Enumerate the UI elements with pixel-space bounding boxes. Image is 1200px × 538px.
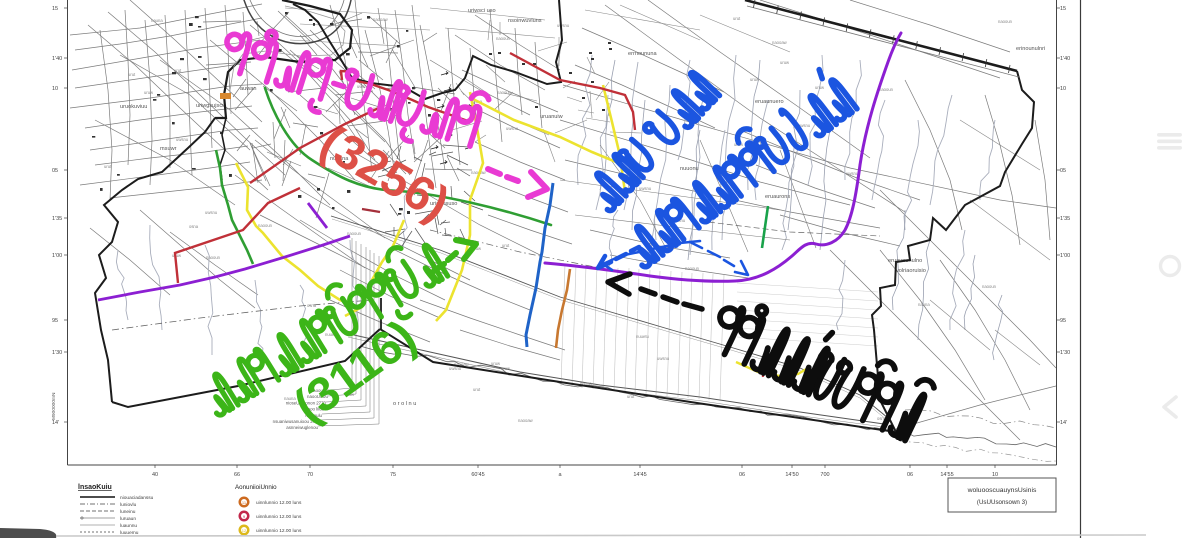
svg-text:1'35: 1'35 xyxy=(1060,216,1070,222)
svg-text:10: 10 xyxy=(1060,86,1066,92)
svg-text:uruw: uruw xyxy=(750,77,760,82)
svg-text:naooun: naooun xyxy=(258,223,273,228)
svg-text:uruw: uruw xyxy=(172,253,182,258)
svg-text:M900000mN: M900000mN xyxy=(51,392,57,420)
svg-text:uruw: uruw xyxy=(501,366,511,371)
svg-text:naooun: naooun xyxy=(685,266,700,271)
svg-text:05: 05 xyxy=(52,168,58,174)
svg-text:uwsnu: uwsnu xyxy=(176,137,189,142)
svg-text:naooun: naooun xyxy=(497,90,512,95)
svg-text:uinnlunnio 12.00 luns: uinnlunnio 12.00 luns xyxy=(256,528,302,534)
svg-text:1'00: 1'00 xyxy=(1060,253,1070,259)
svg-text:urut: urut xyxy=(502,243,510,248)
svg-text:naooun: naooun xyxy=(998,19,1013,24)
svg-text:15: 15 xyxy=(1060,6,1066,12)
svg-text:AonuniioiUnnio: AonuniioiUnnio xyxy=(235,484,277,491)
svg-text:05: 05 xyxy=(1060,168,1066,174)
svg-text:urut: urut xyxy=(128,72,136,77)
svg-text:erinounulnri: erinounulnri xyxy=(1016,46,1045,52)
svg-text:nauna: nauna xyxy=(151,18,163,23)
svg-text:(UsUUsonsown 3): (UsUUsonsown 3) xyxy=(977,499,1027,506)
svg-text:urut: urut xyxy=(627,394,635,399)
svg-text:woluooscuauynsUsinis: woluooscuauynsUsinis xyxy=(967,487,1037,494)
svg-text:uwsnu: uwsnu xyxy=(506,126,519,131)
svg-text:12: 12 xyxy=(242,528,247,533)
svg-text:1'00: 1'00 xyxy=(52,253,62,259)
svg-text:1'30: 1'30 xyxy=(52,350,62,356)
svg-text:urut: urut xyxy=(174,68,182,73)
svg-text:60'45: 60'45 xyxy=(471,472,484,478)
svg-text:lnsaoKuiu: lnsaoKuiu xyxy=(78,484,112,491)
svg-text:naooun: naooun xyxy=(206,255,221,260)
svg-text:luruaun: luruaun xyxy=(120,516,136,522)
svg-text:nsoinwuviuns: nsoinwuviuns xyxy=(508,18,542,24)
svg-text:1'40: 1'40 xyxy=(52,56,62,62)
svg-text:uwsnu: uwsnu xyxy=(657,356,670,361)
svg-text:70: 70 xyxy=(307,472,313,478)
svg-text:06: 06 xyxy=(907,472,913,478)
svg-text:naooaw: naooaw xyxy=(373,17,389,22)
svg-text:uruanuiw: uruanuiw xyxy=(540,114,564,120)
svg-text:errnoununa: errnoununa xyxy=(628,51,658,57)
svg-text:uwsnu: uwsnu xyxy=(557,23,570,28)
svg-text:uruw: uruw xyxy=(815,85,825,90)
svg-text:10: 10 xyxy=(992,472,998,478)
svg-text:1'35: 1'35 xyxy=(52,216,62,222)
svg-text:95: 95 xyxy=(1060,318,1066,324)
svg-text:eruaunuero: eruaunuero xyxy=(755,99,784,105)
svg-text:14'50: 14'50 xyxy=(785,472,798,478)
svg-text:eruaurons: eruaurons xyxy=(765,194,790,200)
svg-text:urut: urut xyxy=(473,387,481,392)
svg-text:1'40: 1'40 xyxy=(1060,56,1070,62)
svg-text:uwsnu: uwsnu xyxy=(205,210,218,215)
svg-text:msuwr: msuwr xyxy=(160,146,177,152)
svg-text:naooaw: naooaw xyxy=(772,40,788,45)
svg-text:luuuemu: luuuemu xyxy=(120,530,139,536)
svg-text:niouaciadanssu: niouaciadanssu xyxy=(120,495,154,501)
svg-text:uriwsci uso: uriwsci uso xyxy=(468,8,496,14)
svg-text:urut: urut xyxy=(104,164,112,169)
svg-text:700: 700 xyxy=(820,472,829,478)
svg-text:o r o l n u: o r o l n u xyxy=(393,401,416,407)
svg-text:luneinu: luneinu xyxy=(120,509,136,515)
svg-text:uruw: uruw xyxy=(780,60,790,65)
svg-text:uruokuviuu: uruokuviuu xyxy=(120,104,147,110)
svg-text:luniovlu: luniovlu xyxy=(120,502,137,508)
svg-text:uwsnu: uwsnu xyxy=(639,186,652,191)
svg-text:naooun: naooun xyxy=(982,284,997,289)
svg-text:uruw: uruw xyxy=(491,361,501,366)
svg-text:1'30: 1'30 xyxy=(1060,350,1070,356)
svg-text:10: 10 xyxy=(52,86,58,92)
svg-text:40: 40 xyxy=(152,472,158,478)
svg-text:66: 66 xyxy=(234,472,240,478)
svg-text:uinnlunnio 12.00 luns: uinnlunnio 12.00 luns xyxy=(256,514,302,520)
svg-text:nuuetu: nuuetu xyxy=(636,334,649,339)
svg-text:auwan: auwan xyxy=(240,86,256,92)
svg-text:osna: osna xyxy=(189,224,199,229)
svg-text:14'45: 14'45 xyxy=(633,472,646,478)
svg-text:95: 95 xyxy=(52,318,58,324)
svg-text:luaunnu: luaunnu xyxy=(120,523,137,529)
svg-text:urut: urut xyxy=(733,16,741,21)
svg-text:uwsnu: uwsnu xyxy=(846,171,859,176)
svg-text:nauna: nauna xyxy=(918,302,930,307)
svg-text:osna: osna xyxy=(307,303,317,308)
svg-text:14'55: 14'55 xyxy=(940,472,953,478)
svg-text:naooun: naooun xyxy=(496,36,511,41)
svg-text:06: 06 xyxy=(739,472,745,478)
svg-text:volriaoruisio: volriaoruisio xyxy=(896,268,926,274)
svg-text:naooun: naooun xyxy=(879,87,894,92)
svg-text:uinnlunnio 12.00 luns: uinnlunnio 12.00 luns xyxy=(256,500,302,506)
svg-text:14': 14' xyxy=(1060,420,1067,426)
svg-text:nuuonu: nuuonu xyxy=(680,166,699,172)
svg-text:75: 75 xyxy=(390,472,396,478)
svg-text:15: 15 xyxy=(52,6,58,12)
svg-text:naooaw: naooaw xyxy=(518,418,534,423)
svg-text:uruw: uruw xyxy=(144,90,154,95)
svg-text:uriwgsujscu: uriwgsujscu xyxy=(196,103,225,109)
